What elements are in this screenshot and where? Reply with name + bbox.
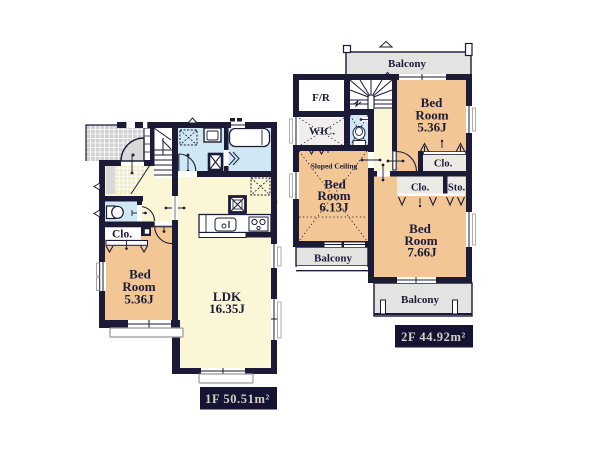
svg-text:1F 50.51m²: 1F 50.51m²	[205, 392, 270, 406]
svg-text:7.66J: 7.66J	[407, 245, 437, 260]
svg-text:Sloped Ceiling: Sloped Ceiling	[311, 162, 358, 171]
svg-text:16.35J: 16.35J	[209, 301, 245, 316]
svg-text:WIC.: WIC.	[309, 126, 335, 138]
svg-text:5.36J: 5.36J	[124, 292, 154, 307]
svg-text:6.13J: 6.13J	[319, 200, 349, 215]
svg-text:Clo.: Clo.	[112, 229, 132, 241]
svg-text:Balcony: Balcony	[314, 253, 352, 265]
svg-text:5.36J: 5.36J	[417, 120, 447, 135]
svg-text:2F 44.92m²: 2F 44.92m²	[401, 330, 466, 344]
svg-text:Balcony: Balcony	[401, 294, 439, 306]
svg-text:Balcony: Balcony	[388, 58, 426, 70]
svg-text:Clo.: Clo.	[434, 159, 453, 170]
svg-text:F/R: F/R	[312, 92, 331, 104]
svg-text:Sto.: Sto.	[448, 183, 466, 194]
svg-text:Clo.: Clo.	[411, 183, 430, 194]
